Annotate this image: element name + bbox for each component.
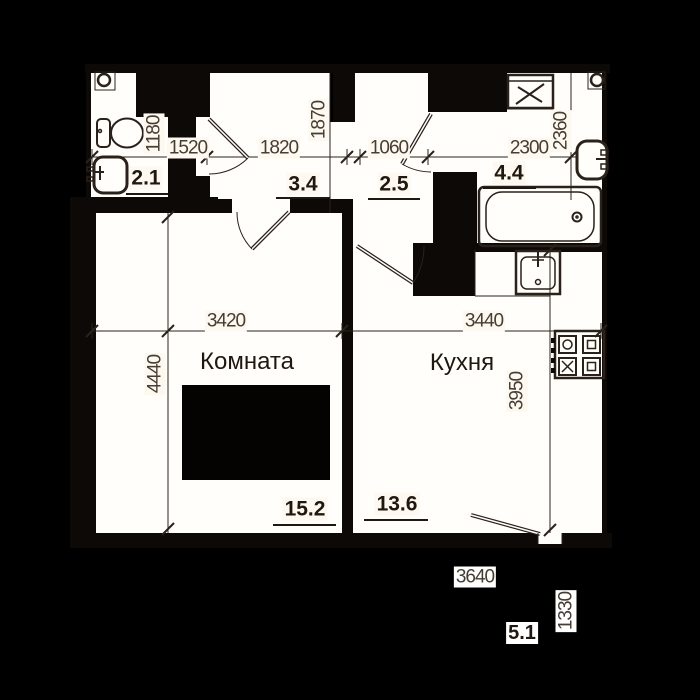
- dim-4440: 4440: [145, 353, 166, 395]
- area-underline: [368, 198, 420, 200]
- door-living: [237, 212, 289, 249]
- dim-1520: 1520: [167, 138, 209, 159]
- dim-2300: 2300: [508, 138, 550, 159]
- wall-sink-icon: [577, 141, 608, 179]
- dim-1330: 1330: [556, 590, 577, 632]
- room-label-kitchen: Кухня: [430, 351, 494, 375]
- dim-1820: 1820: [258, 138, 300, 159]
- area-underline: [364, 519, 428, 521]
- area-underline: [483, 187, 536, 189]
- door-entry: [209, 119, 248, 174]
- area-hallway: 3.4: [286, 173, 319, 196]
- toilet-icon: [97, 119, 143, 148]
- area-underline: [276, 197, 330, 199]
- dim-3440: 3440: [463, 311, 505, 332]
- area-underline: [273, 524, 336, 526]
- dim-1870: 1870: [309, 99, 330, 141]
- area-bathroom-left: 2.1: [129, 167, 162, 190]
- area-balcony: 5.1: [506, 622, 538, 644]
- area-bathroom-right: 4.4: [492, 162, 525, 185]
- dim-3640: 3640: [454, 567, 496, 588]
- vent-circle-right-icon: [588, 72, 605, 89]
- dim-1060: 1060: [368, 138, 410, 159]
- balcony-door-icon: [471, 515, 562, 544]
- floor-plan-canvas: 1520 1820 1060 2300 1180 1870 2360 3420 …: [0, 0, 700, 700]
- area-kitchen: 13.6: [375, 493, 420, 516]
- kitchen-sink-icon: [516, 250, 560, 294]
- area-living: 15.2: [283, 498, 328, 521]
- washing-machine-icon: [508, 75, 553, 108]
- area-corridor: 2.5: [377, 173, 410, 196]
- dim-1180: 1180: [144, 114, 165, 155]
- bathtub-icon: [479, 187, 601, 246]
- dim-2360: 2360: [551, 110, 572, 152]
- area-underline: [126, 193, 168, 195]
- linework-layer: [0, 0, 700, 700]
- dimension-ticks: [86, 149, 607, 536]
- stove-icon: [551, 331, 604, 378]
- door-kitchen: [357, 246, 424, 283]
- dim-3950: 3950: [507, 370, 528, 412]
- sink-icon: [87, 157, 127, 193]
- room-label-living: Комната: [200, 350, 294, 374]
- vent-circle-left-icon: [95, 72, 115, 90]
- dim-3420: 3420: [205, 311, 247, 332]
